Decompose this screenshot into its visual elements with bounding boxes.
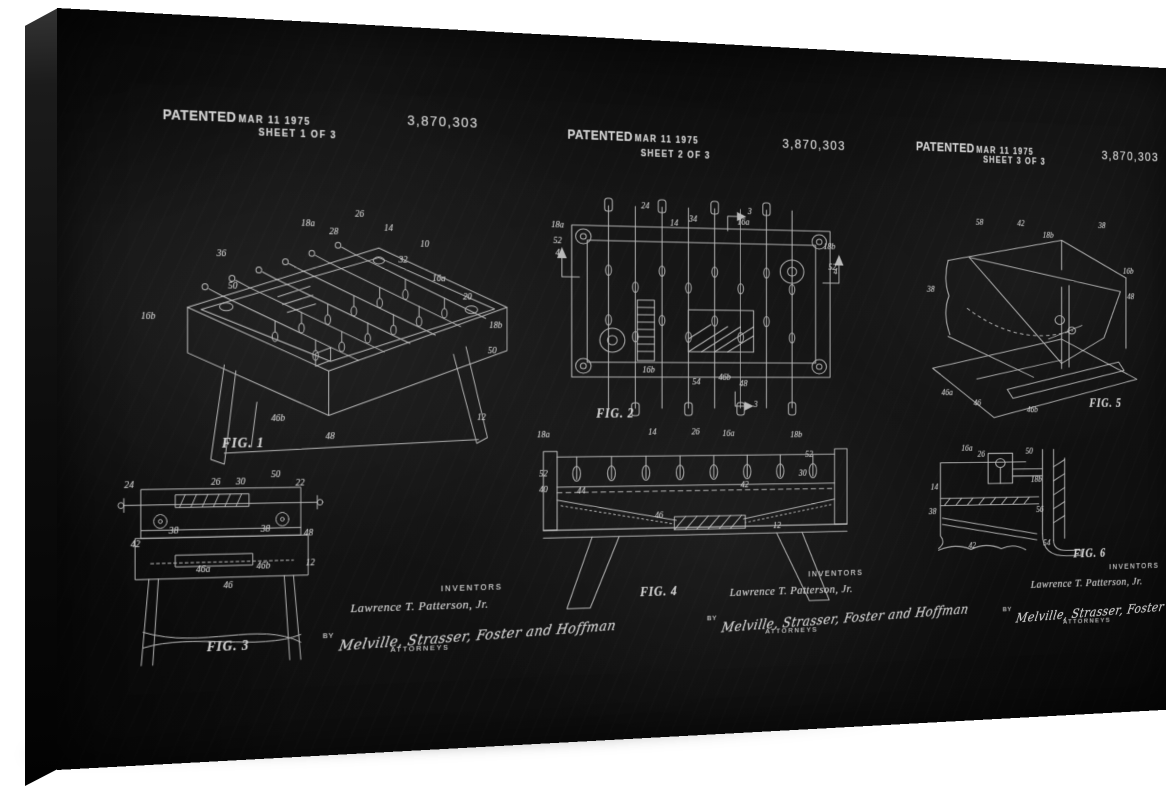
part-callout-52: 52 [539, 468, 548, 478]
sheet1-inventors-block: INVENTORS Lawrence T. Patterson, Jr. BYM… [323, 582, 515, 657]
part-callout-42: 42 [1017, 219, 1024, 229]
fig5-container: 584218b383816b4846a4646b [919, 203, 1146, 423]
sheet3-label: SHEET 3 OF 3 [974, 155, 1056, 168]
part-callout-18b: 18b [790, 430, 802, 440]
part-callout-3: 3 [748, 206, 752, 216]
part-callout-46b: 46b [719, 372, 731, 382]
inventor-name: Lawrence T. Patterson, Jr. [1003, 573, 1166, 592]
part-callout-54: 54 [692, 376, 700, 386]
part-callout-56: 56 [1036, 505, 1043, 515]
canvas-side-edge [25, 8, 58, 786]
part-callout-46b: 46b [1027, 405, 1038, 415]
part-callout-14: 14 [384, 223, 393, 234]
canvas-print-product-photo: PATENTEDMAR 11 1975 SHEET 1 OF 3 3,870,3… [0, 0, 1166, 790]
fig4-label: FIG. 4 [640, 585, 677, 601]
part-callout-48: 48 [304, 527, 313, 538]
part-callout-44: 44 [577, 486, 586, 496]
part-callout-42: 42 [741, 480, 749, 490]
part-callout-14: 14 [931, 482, 939, 492]
part-callout-16b: 16b [1123, 266, 1134, 276]
sheet1-label: SHEET 1 OF 3 [246, 127, 348, 141]
part-callout-14: 14 [670, 218, 678, 228]
part-callout-16a: 16a [737, 217, 749, 227]
part-callout-52: 52 [553, 236, 562, 246]
sheet2-inventors-block: INVENTORS Lawrence T. Patterson, Jr. BYM… [707, 567, 874, 637]
part-callout-42: 42 [969, 541, 977, 551]
sheet3-inventors-block: INVENTORS Lawrence T. Patterson, Jr. BYM… [1003, 561, 1166, 628]
part-callout-46b: 46b [256, 560, 270, 571]
patent-date: MAR 11 1975 [635, 134, 699, 147]
part-callout-12: 12 [306, 557, 315, 568]
part-callout-42: 42 [131, 539, 141, 550]
fig2-top-plan-drawing [544, 189, 859, 424]
part-callout-22: 22 [296, 477, 305, 488]
part-callout-34: 34 [689, 214, 697, 224]
part-callout-46: 46 [974, 398, 982, 408]
patented-label: PATENTED [163, 106, 237, 125]
part-callout-4: 4 [555, 247, 559, 257]
part-callout-16a: 16a [722, 428, 734, 438]
part-callout-18b: 18b [1043, 230, 1054, 240]
part-callout-48: 48 [739, 379, 747, 389]
part-callout-58: 58 [976, 217, 983, 227]
fig5-label: FIG. 5 [1089, 397, 1121, 411]
fig2-container: 24143416a18a524318b52416b5446b483 [544, 189, 859, 424]
part-callout-18a: 18a [537, 429, 550, 439]
part-callout-10: 10 [420, 239, 429, 250]
sheet1-patent-number: 3,870,303 [407, 113, 478, 132]
part-callout-50: 50 [1026, 446, 1033, 456]
part-callout-36: 36 [217, 248, 226, 259]
part-callout-30: 30 [799, 468, 807, 478]
part-callout-30: 30 [236, 476, 245, 487]
fig1-container: 18a3650282614103216a2018b501216b46b48 [140, 203, 509, 472]
patented-label: PATENTED [916, 139, 975, 155]
part-callout-18a: 18a [301, 218, 315, 229]
part-callout-50: 50 [228, 280, 237, 291]
fig6-label: FIG. 6 [1073, 547, 1105, 562]
part-callout-18b: 18b [1031, 475, 1042, 485]
part-callout-12: 12 [773, 520, 781, 530]
part-callout-26: 26 [211, 476, 220, 487]
part-callout-18b: 18b [489, 320, 502, 330]
part-callout-26: 26 [978, 449, 985, 459]
part-callout-12: 12 [477, 412, 486, 422]
part-callout-38: 38 [927, 284, 935, 294]
by-label: BY [323, 631, 335, 640]
part-callout-24: 24 [641, 201, 649, 211]
part-callout-24: 24 [124, 479, 134, 490]
part-callout-4: 4 [833, 267, 837, 277]
part-callout-16a: 16a [961, 444, 972, 454]
by-label: BY [1003, 605, 1012, 613]
part-callout-16a: 16a [432, 273, 445, 284]
part-callout-3: 3 [754, 399, 758, 409]
part-callout-26: 26 [355, 209, 364, 220]
part-callout-16b: 16b [642, 365, 654, 375]
sheet2-patent-number: 3,870,303 [782, 136, 845, 154]
patented-label: PATENTED [567, 127, 632, 144]
part-callout-26: 26 [691, 427, 699, 437]
part-callout-46a: 46a [196, 564, 210, 575]
part-callout-28: 28 [329, 227, 338, 238]
part-callout-38: 38 [929, 507, 937, 517]
part-callout-40: 40 [539, 485, 548, 495]
part-callout-38: 38 [1098, 221, 1105, 231]
part-callout-38: 38 [169, 526, 179, 537]
part-callout-46a: 46a [941, 388, 952, 398]
inventor-name: Lawrence T. Patterson, Jr. [707, 581, 874, 601]
part-callout-50: 50 [488, 345, 497, 355]
part-callout-18a: 18a [551, 219, 564, 230]
part-callout-18b: 18b [824, 242, 836, 252]
part-callout-54: 54 [1043, 538, 1050, 548]
part-callout-32: 32 [399, 254, 408, 265]
by-label: BY [707, 614, 717, 623]
sheet2-patented-line: PATENTEDMAR 11 1975 [567, 127, 698, 147]
inventor-name: Lawrence T. Patterson, Jr. [323, 596, 515, 617]
part-callout-16b: 16b [141, 311, 156, 322]
fig3-label: FIG. 3 [207, 639, 249, 656]
chalkboard-patent-artwork: PATENTEDMAR 11 1975 SHEET 1 OF 3 3,870,3… [57, 8, 1166, 770]
part-callout-14: 14 [648, 427, 656, 437]
fig1-label: FIG. 1 [222, 437, 264, 453]
part-callout-38: 38 [261, 524, 270, 535]
inventors-label: INVENTORS [323, 582, 515, 597]
part-callout-50: 50 [271, 469, 280, 480]
fig2-label: FIG. 2 [596, 407, 634, 422]
patent-date: MAR 11 1975 [238, 114, 310, 128]
part-callout-46: 46 [655, 510, 663, 520]
sheet1-patented-line: PATENTEDMAR 11 1975 [163, 106, 311, 127]
part-callout-48: 48 [1127, 292, 1134, 301]
fig5-corner-perspective-drawing [919, 203, 1146, 423]
part-callout-20: 20 [463, 291, 472, 301]
part-callout-46: 46 [223, 579, 232, 590]
sheet2-label: SHEET 2 OF 3 [630, 148, 721, 161]
sheet3-patent-number: 3,870,303 [1102, 148, 1159, 165]
part-callout-52: 52 [805, 449, 813, 459]
part-callout-48: 48 [326, 430, 335, 441]
part-callout-46b: 46b [271, 412, 285, 423]
